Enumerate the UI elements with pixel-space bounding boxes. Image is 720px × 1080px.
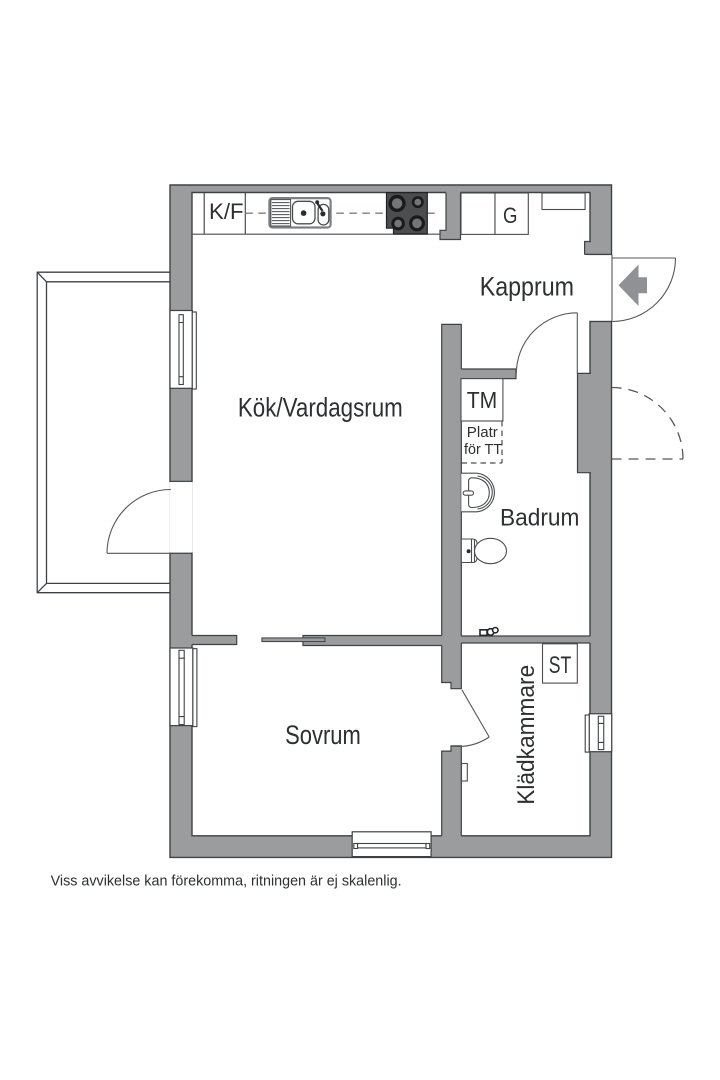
svg-text:TM: TM xyxy=(467,387,498,413)
svg-text:ST: ST xyxy=(549,652,572,679)
svg-text:K/F: K/F xyxy=(209,199,244,224)
svg-text:Viss avvikelse kan förekomma,: Viss avvikelse kan förekomma, ritningen … xyxy=(51,873,402,890)
svg-text:Platr: Platr xyxy=(467,425,498,441)
svg-text:Kapprum: Kapprum xyxy=(480,271,574,301)
svg-text:Kök/Vardagsrum: Kök/Vardagsrum xyxy=(238,393,403,423)
svg-text:för TT: för TT xyxy=(464,442,502,458)
svg-text:G: G xyxy=(503,203,518,228)
svg-text:Sovrum: Sovrum xyxy=(285,720,361,750)
svg-text:Badrum: Badrum xyxy=(500,505,579,532)
svg-text:Klädkammare: Klädkammare xyxy=(513,665,540,805)
